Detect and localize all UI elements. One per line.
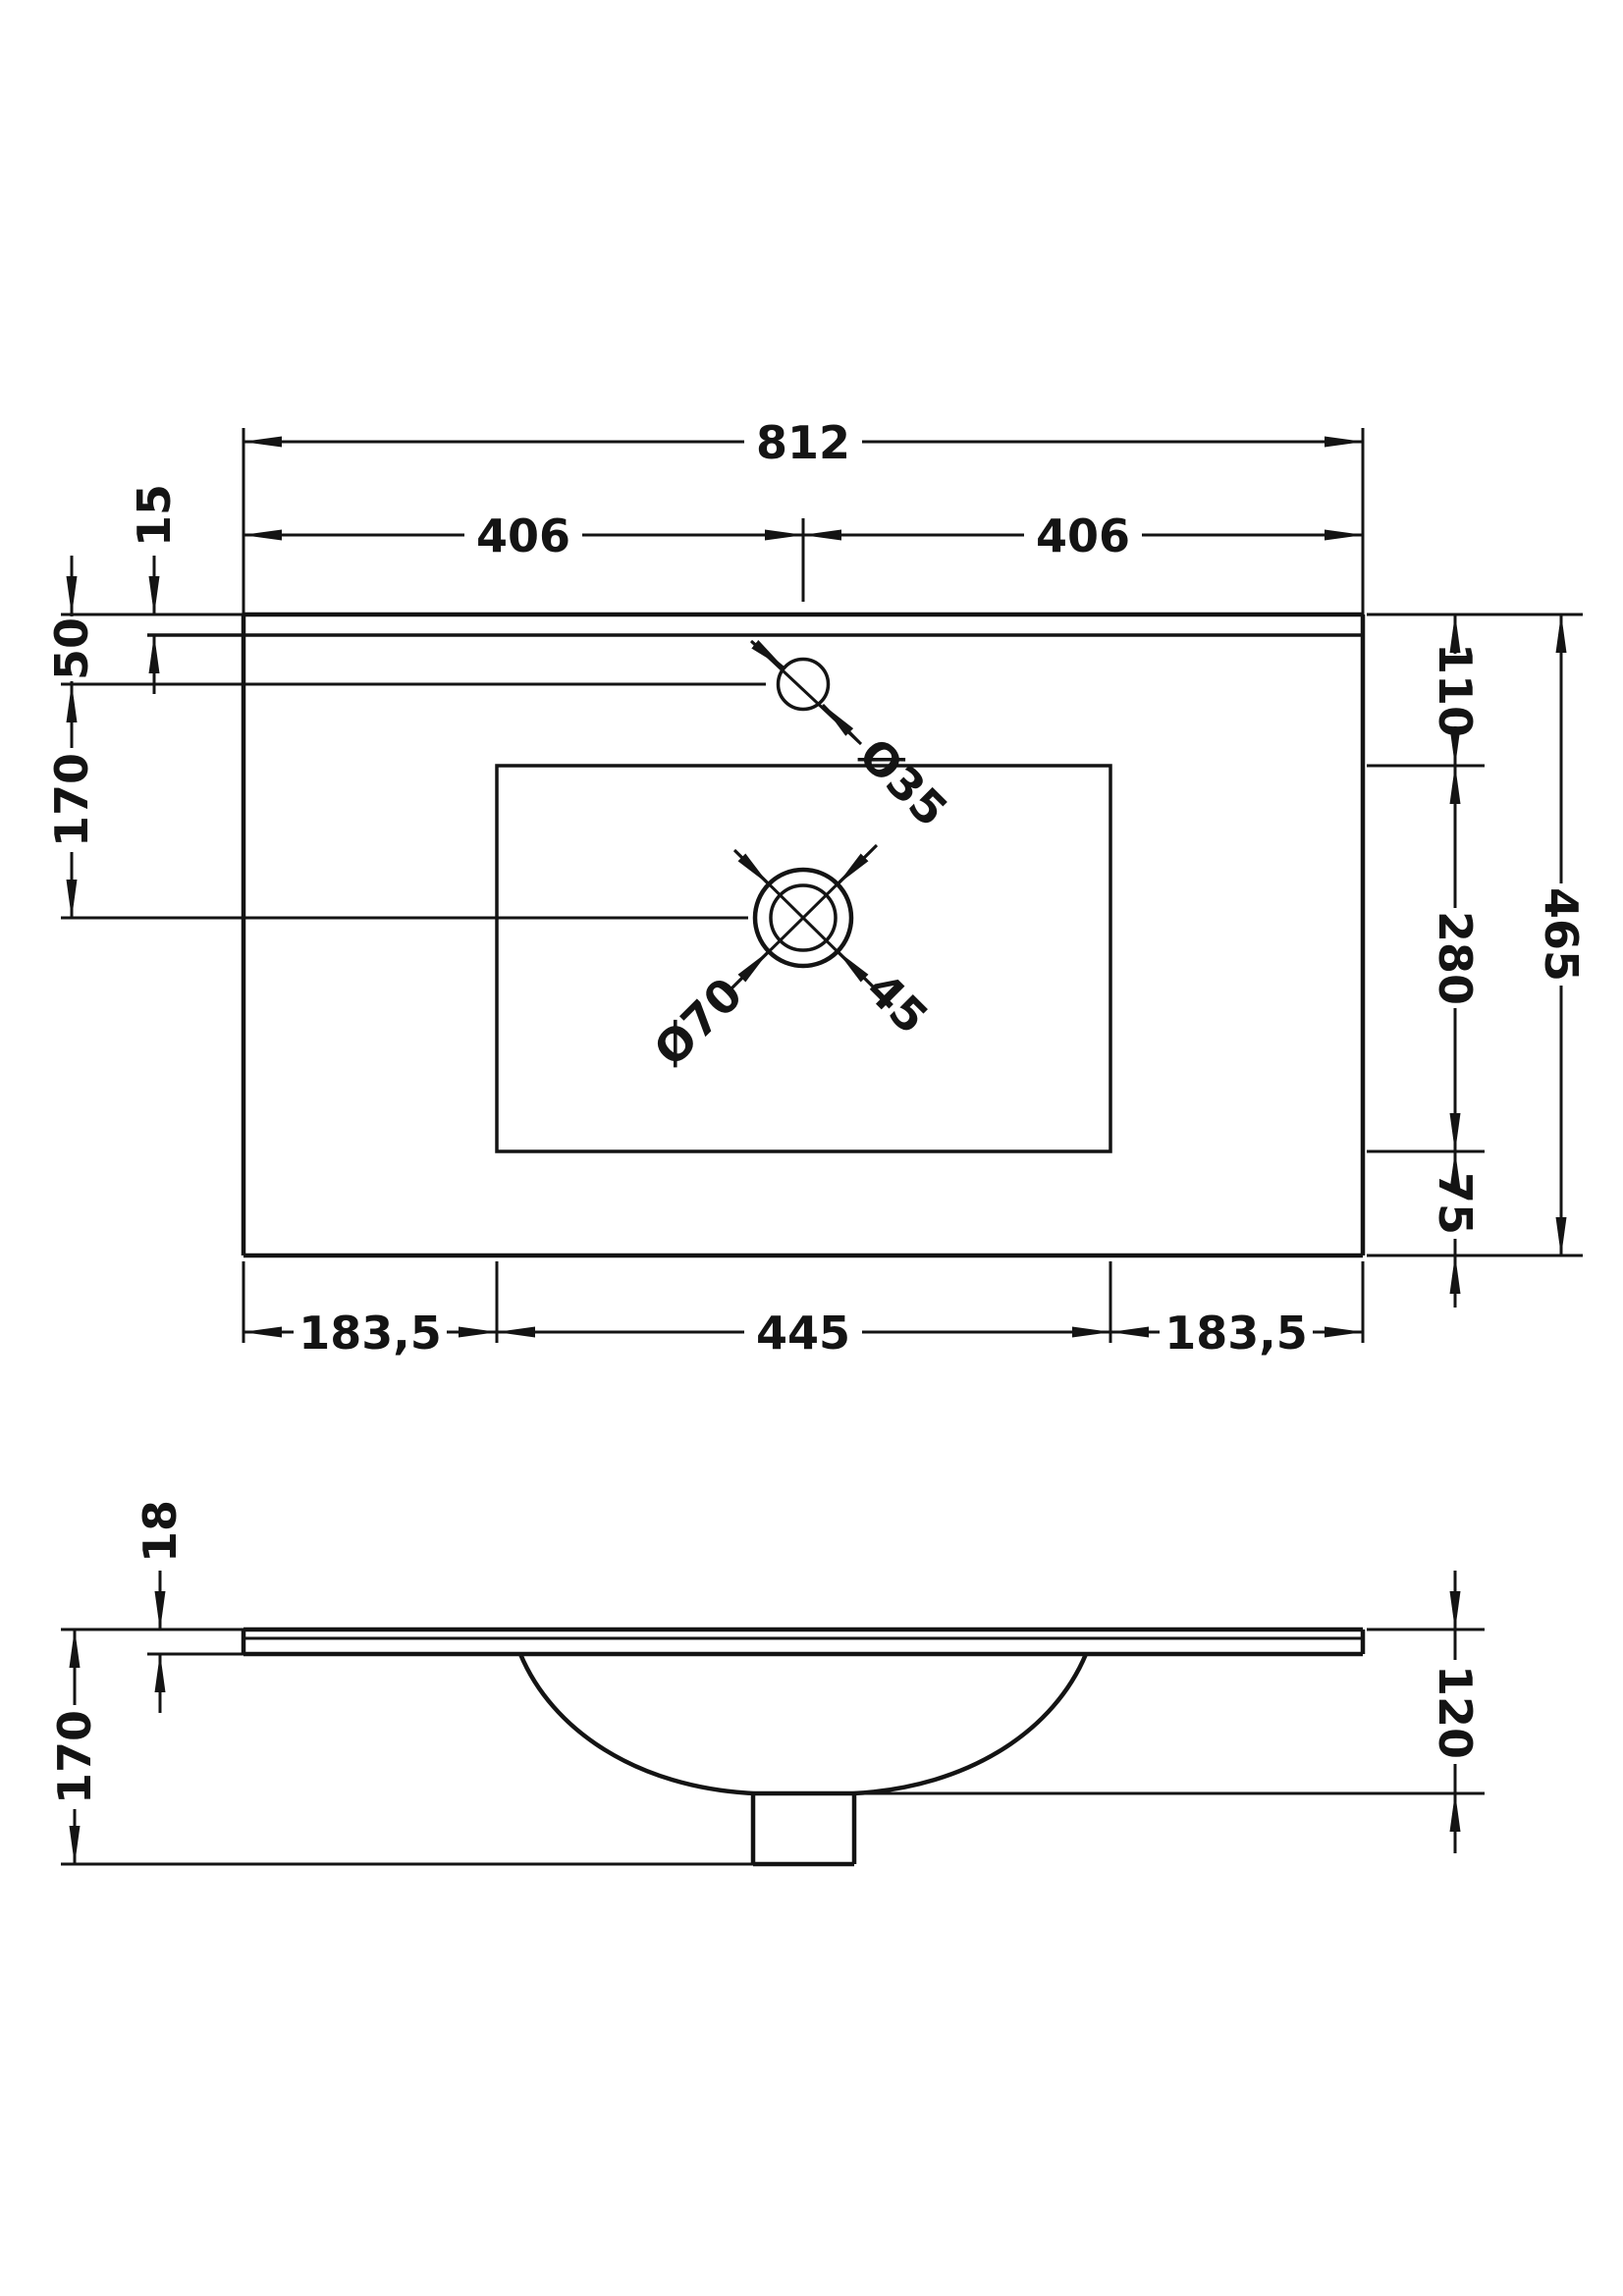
label-tap-hole-diameter: Ø35 <box>848 727 957 836</box>
dim-rim-15: 15 <box>128 484 181 547</box>
dim-overall-width: 812 <box>756 416 850 469</box>
dim-side-170: 170 <box>48 1710 101 1804</box>
dim-bowl-120: 120 <box>1429 1665 1482 1759</box>
dim-bottom-right: 183,5 <box>1164 1307 1308 1360</box>
dim-tap-offset-50: 50 <box>45 617 98 680</box>
tap-hole-circle <box>779 660 829 710</box>
dimension-texts: 812 406 406 15 50 170 Ø35 Ø70 45 110 280… <box>45 416 1588 1804</box>
basin-cutout-outline <box>497 766 1110 1151</box>
drawing-page: 812 406 406 15 50 170 Ø35 Ø70 45 110 280… <box>0 0 1623 2296</box>
dim-half-left: 406 <box>476 509 570 562</box>
dim-slab-18: 18 <box>134 1500 187 1563</box>
label-waste-inner-45: 45 <box>856 962 938 1043</box>
dim-half-right: 406 <box>1036 509 1130 562</box>
dim-tap-to-waste-170: 170 <box>45 753 98 847</box>
dim-bottom-center: 445 <box>756 1307 850 1360</box>
bowl-curve-left <box>520 1654 754 1793</box>
dim-right-110: 110 <box>1429 643 1482 737</box>
dim-right-280: 280 <box>1429 911 1482 1005</box>
technical-drawing: 812 406 406 15 50 170 Ø35 Ø70 45 110 280… <box>0 0 1623 2296</box>
dim-right-75: 75 <box>1429 1172 1482 1235</box>
plan-view <box>61 428 1583 1343</box>
side-view <box>61 1629 1485 1864</box>
text-masks <box>45 416 1588 1809</box>
dim-overall-depth-465: 465 <box>1535 887 1588 982</box>
dim-bottom-left: 183,5 <box>298 1307 442 1360</box>
bowl-curve-right <box>853 1654 1086 1793</box>
